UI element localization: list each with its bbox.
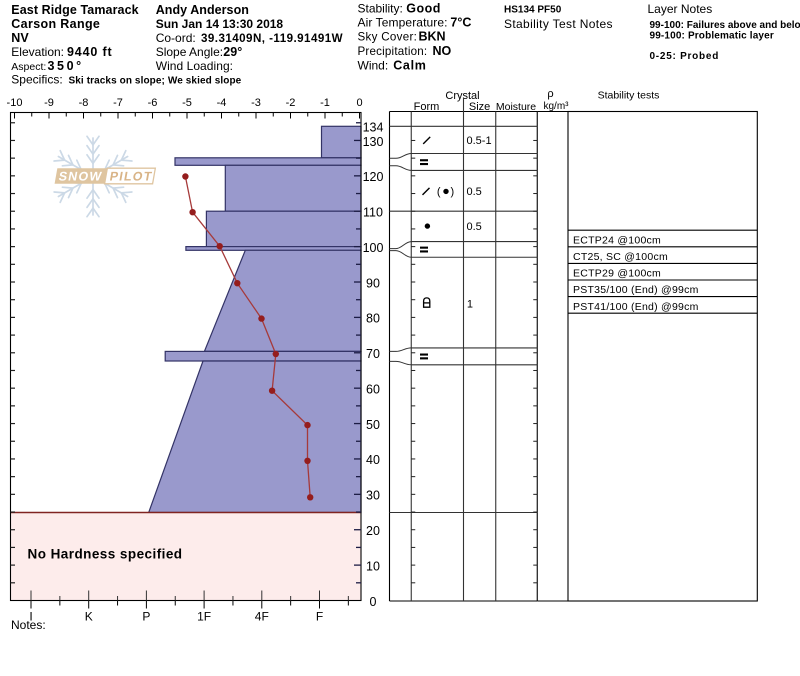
svg-text:30: 30 xyxy=(366,489,380,503)
svg-text:kg/m³: kg/m³ xyxy=(544,101,570,112)
svg-text:130: 130 xyxy=(363,135,384,149)
svg-text:Air Temperature:: Air Temperature: xyxy=(358,15,448,29)
svg-text:Ski tracks on slope; We skied: Ski tracks on slope; We skied slope xyxy=(69,76,242,87)
svg-text:Precipitation:: Precipitation: xyxy=(358,45,428,58)
svg-text:99-100: Problematic layer: 99-100: Problematic layer xyxy=(650,31,774,42)
svg-text:50: 50 xyxy=(366,418,380,432)
svg-text:10: 10 xyxy=(366,559,380,573)
svg-text:P: P xyxy=(142,610,150,624)
svg-text:-7: -7 xyxy=(113,97,123,109)
svg-text:Specifics:: Specifics: xyxy=(11,73,62,87)
svg-text:Stability Test Notes: Stability Test Notes xyxy=(504,17,613,31)
svg-text:0.5: 0.5 xyxy=(467,186,482,198)
svg-text:-9: -9 xyxy=(44,97,54,109)
svg-text:BKN: BKN xyxy=(419,30,446,44)
svg-text:39.31409N, -119.91491W: 39.31409N, -119.91491W xyxy=(201,32,343,45)
svg-text:29°: 29° xyxy=(223,45,242,59)
svg-text:-4: -4 xyxy=(217,97,227,109)
svg-text:-5: -5 xyxy=(182,97,192,109)
svg-text:East Ridge Tamarack: East Ridge Tamarack xyxy=(11,3,138,17)
svg-text:350°: 350° xyxy=(48,59,84,73)
svg-text:0: 0 xyxy=(370,595,377,609)
svg-text:): ) xyxy=(451,186,455,198)
svg-text:80: 80 xyxy=(366,312,380,326)
svg-text:SNOW: SNOW xyxy=(58,170,104,184)
svg-text:9440 ft: 9440 ft xyxy=(67,45,113,59)
svg-text:-2: -2 xyxy=(286,97,296,109)
svg-text:Aspect:: Aspect: xyxy=(11,61,46,73)
svg-text:Wind Loading:: Wind Loading: xyxy=(156,59,233,73)
svg-text:Andy Anderson: Andy Anderson xyxy=(156,3,249,17)
svg-text:7°C: 7°C xyxy=(450,15,471,29)
svg-text:Stability:: Stability: xyxy=(358,1,403,15)
svg-text:1F: 1F xyxy=(197,610,211,624)
svg-text:1: 1 xyxy=(467,299,473,311)
svg-text:-10: -10 xyxy=(7,97,23,109)
svg-text:Wind:: Wind: xyxy=(358,59,389,73)
svg-text:134: 134 xyxy=(363,121,384,135)
svg-text:-1: -1 xyxy=(320,97,330,109)
svg-text:Calm: Calm xyxy=(393,59,426,73)
svg-text:NV: NV xyxy=(11,31,29,45)
svg-text:PST35/100 (End) @99cm: PST35/100 (End) @99cm xyxy=(573,284,699,296)
svg-text:Sun Jan 14 13:30 2018: Sun Jan 14 13:30 2018 xyxy=(156,17,284,31)
svg-text:0: 0 xyxy=(356,97,362,109)
svg-text:100: 100 xyxy=(363,241,384,255)
svg-text:Elevation:: Elevation: xyxy=(11,45,64,59)
svg-text:NO: NO xyxy=(433,44,452,58)
svg-text:PILOT: PILOT xyxy=(109,170,154,184)
svg-text:60: 60 xyxy=(366,382,380,396)
svg-text:Good: Good xyxy=(406,1,441,15)
svg-text:0-25: Probed: 0-25: Probed xyxy=(650,51,720,62)
svg-text:0.5: 0.5 xyxy=(467,221,482,233)
svg-text:20: 20 xyxy=(366,524,380,538)
svg-text:ECTP29 @100cm: ECTP29 @100cm xyxy=(573,268,661,280)
svg-text:ρ: ρ xyxy=(547,88,553,100)
svg-text:110: 110 xyxy=(363,206,383,220)
svg-text:Slope Angle:: Slope Angle: xyxy=(156,45,223,59)
svg-text:4F: 4F xyxy=(255,610,269,624)
svg-text:40: 40 xyxy=(366,453,380,467)
svg-text:CT25, SC @100cm: CT25, SC @100cm xyxy=(573,251,668,263)
svg-text:Co-ord:: Co-ord: xyxy=(156,31,196,45)
svg-text:Layer Notes: Layer Notes xyxy=(648,2,713,16)
svg-text:90: 90 xyxy=(366,276,380,290)
svg-text:F: F xyxy=(316,610,323,624)
svg-text:Carson Range: Carson Range xyxy=(11,17,100,31)
svg-text:PST41/100 (End) @99cm: PST41/100 (End) @99cm xyxy=(573,301,699,313)
svg-text:0.5-1: 0.5-1 xyxy=(467,135,492,147)
svg-text:HS134 PF50: HS134 PF50 xyxy=(504,5,562,16)
svg-text:K: K xyxy=(85,610,93,624)
svg-text:-8: -8 xyxy=(79,97,89,109)
svg-text:-3: -3 xyxy=(251,97,261,109)
svg-text:99-100: Failures above and bel: 99-100: Failures above and below xyxy=(650,20,800,31)
svg-text:Notes:: Notes: xyxy=(11,618,46,632)
svg-text:Sky Cover:: Sky Cover: xyxy=(358,31,418,44)
svg-text:-6: -6 xyxy=(148,97,158,109)
svg-text:Stability tests: Stability tests xyxy=(598,90,660,102)
svg-text:No Hardness specified: No Hardness specified xyxy=(28,547,183,562)
svg-text:120: 120 xyxy=(363,170,384,184)
svg-text:70: 70 xyxy=(366,347,380,361)
svg-text:(: ( xyxy=(437,186,441,198)
svg-text:ECTP24 @100cm: ECTP24 @100cm xyxy=(573,234,661,246)
